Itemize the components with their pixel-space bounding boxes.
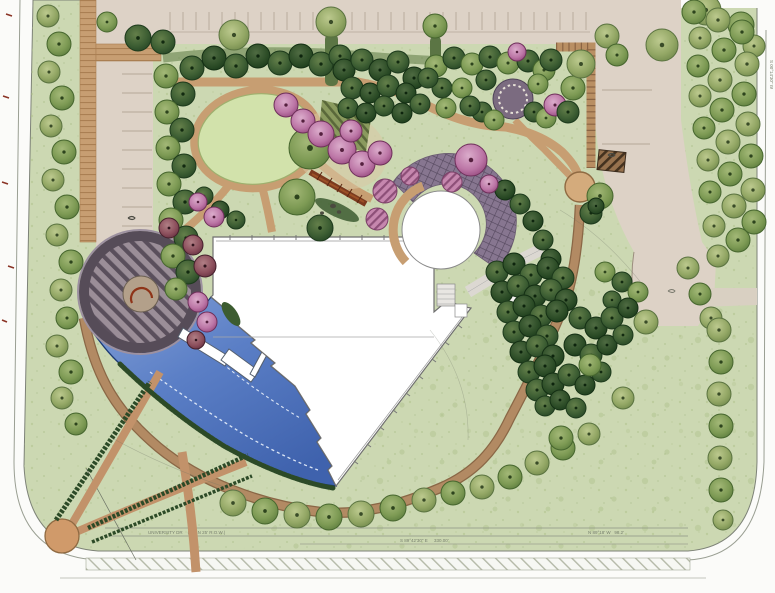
svg-text:UNIVERSITY DR (PLAN 25' R.O: UNIVERSITY DR (PLAN 25' R.O.W.) [148, 530, 226, 535]
svg-text:S 00°14'30" W: S 00°14'30" W [769, 60, 774, 90]
svg-text:N 89°18' W 98.2': N 89°18' W 98.2' [588, 530, 624, 535]
svg-text:S 89°42'30" E 330.00': S 89°42'30" E 330.00' [400, 538, 449, 543]
